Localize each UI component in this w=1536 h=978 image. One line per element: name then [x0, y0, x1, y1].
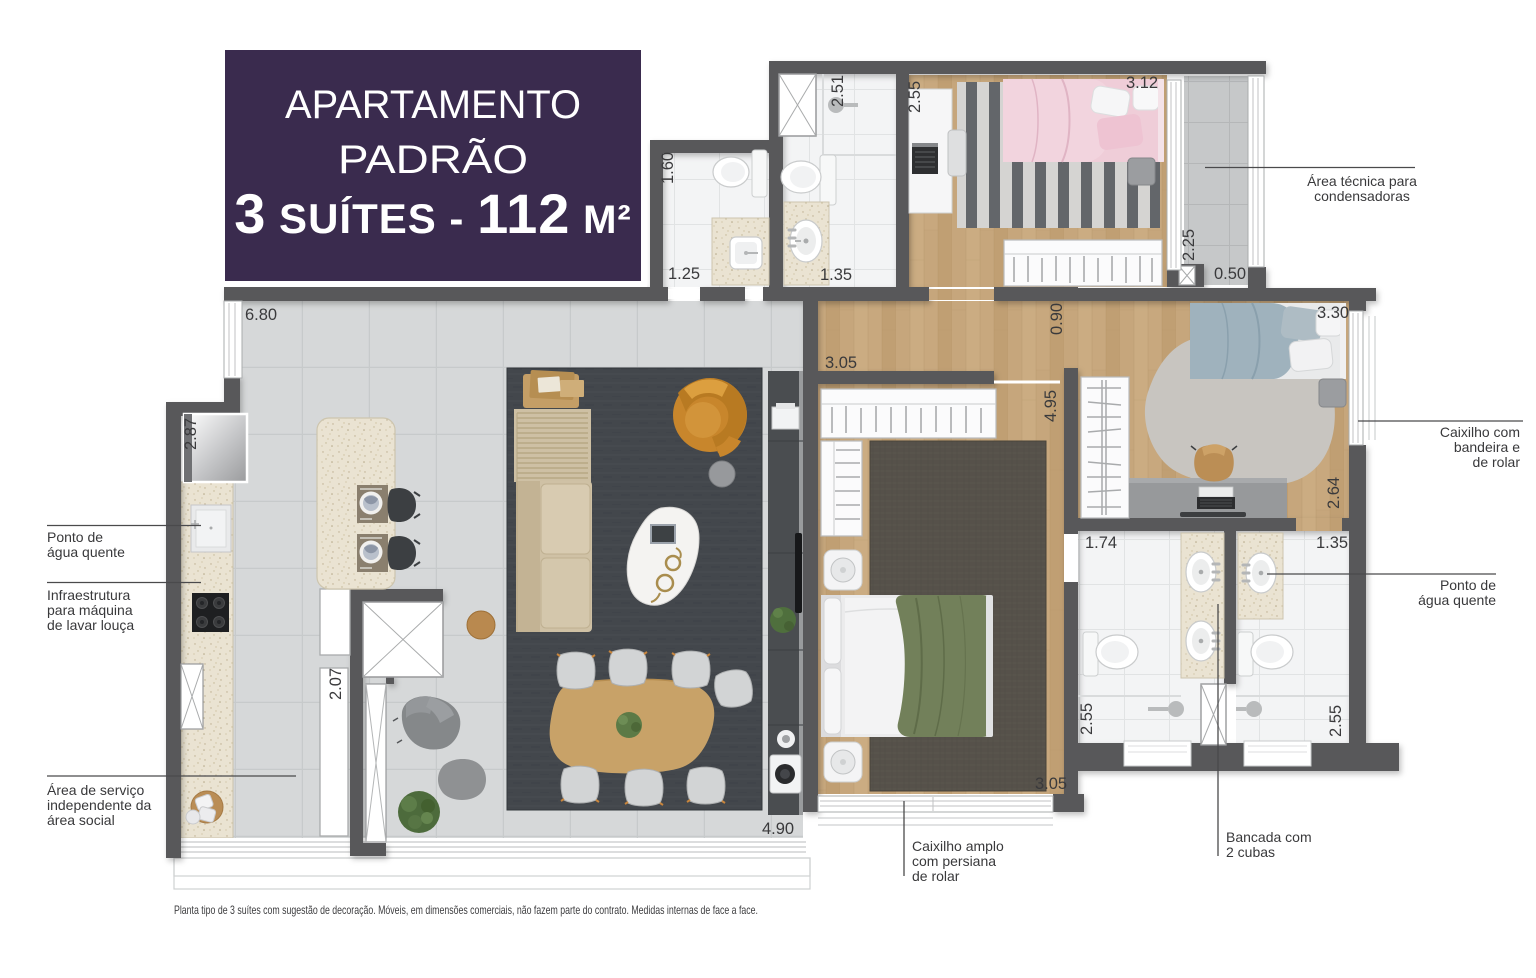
svg-text:3.12: 3.12 — [1126, 74, 1158, 92]
svg-text:Área de serviço: Área de serviço — [47, 782, 144, 798]
svg-text:2.55: 2.55 — [906, 81, 924, 113]
svg-text:1.25: 1.25 — [668, 265, 700, 283]
svg-text:6.80: 6.80 — [245, 306, 277, 324]
svg-text:2.64: 2.64 — [1325, 477, 1343, 509]
svg-text:de lavar louça: de lavar louça — [47, 617, 134, 633]
svg-text:4.90: 4.90 — [762, 820, 794, 838]
svg-text:APARTAMENTO: APARTAMENTO — [285, 83, 581, 127]
svg-text:2.55: 2.55 — [1327, 705, 1345, 737]
svg-text:3.30: 3.30 — [1317, 304, 1349, 322]
svg-text:1.60: 1.60 — [659, 152, 677, 184]
svg-text:área social: área social — [47, 812, 115, 828]
svg-text:3.05: 3.05 — [825, 354, 857, 372]
svg-text:bandeira e: bandeira e — [1454, 439, 1520, 455]
svg-text:independente da: independente da — [47, 797, 152, 813]
svg-text:Infraestrutura: Infraestrutura — [47, 587, 130, 603]
svg-text:Caixilho com: Caixilho com — [1440, 424, 1520, 440]
svg-text:PADRÃO: PADRÃO — [338, 137, 528, 182]
svg-text:1.35: 1.35 — [1316, 534, 1348, 552]
svg-text:2.55: 2.55 — [1078, 703, 1096, 735]
svg-text:3.05: 3.05 — [1035, 775, 1067, 793]
svg-text:água quente: água quente — [1418, 592, 1496, 608]
svg-text:0.50: 0.50 — [1214, 265, 1246, 283]
svg-text:Área técnica para: Área técnica para — [1307, 173, 1417, 189]
svg-text:Ponto de: Ponto de — [47, 529, 103, 545]
svg-text:2.25: 2.25 — [1180, 229, 1198, 261]
svg-text:Planta tipo de 3 suítes com su: Planta tipo de 3 suítes com sugestão de … — [174, 903, 758, 917]
svg-text:com persiana: com persiana — [912, 853, 996, 869]
svg-text:de rolar: de rolar — [912, 868, 960, 884]
svg-text:4.95: 4.95 — [1042, 390, 1060, 422]
svg-text:para máquina: para máquina — [47, 602, 133, 618]
svg-text:2 cubas: 2 cubas — [1226, 844, 1275, 860]
svg-text:água quente: água quente — [47, 544, 125, 560]
svg-text:de rolar: de rolar — [1473, 454, 1521, 470]
svg-text:2.07: 2.07 — [327, 668, 345, 700]
svg-text:2.51: 2.51 — [829, 75, 847, 107]
svg-text:0.90: 0.90 — [1048, 303, 1066, 335]
svg-text:condensadoras: condensadoras — [1314, 188, 1410, 204]
svg-text:2.87: 2.87 — [182, 418, 200, 450]
svg-text:1.35: 1.35 — [820, 266, 852, 284]
svg-text:Bancada com: Bancada com — [1226, 829, 1312, 845]
svg-text:Caixilho amplo: Caixilho amplo — [912, 838, 1004, 854]
svg-text:Ponto de: Ponto de — [1440, 577, 1496, 593]
svg-text:1.74: 1.74 — [1085, 534, 1117, 552]
